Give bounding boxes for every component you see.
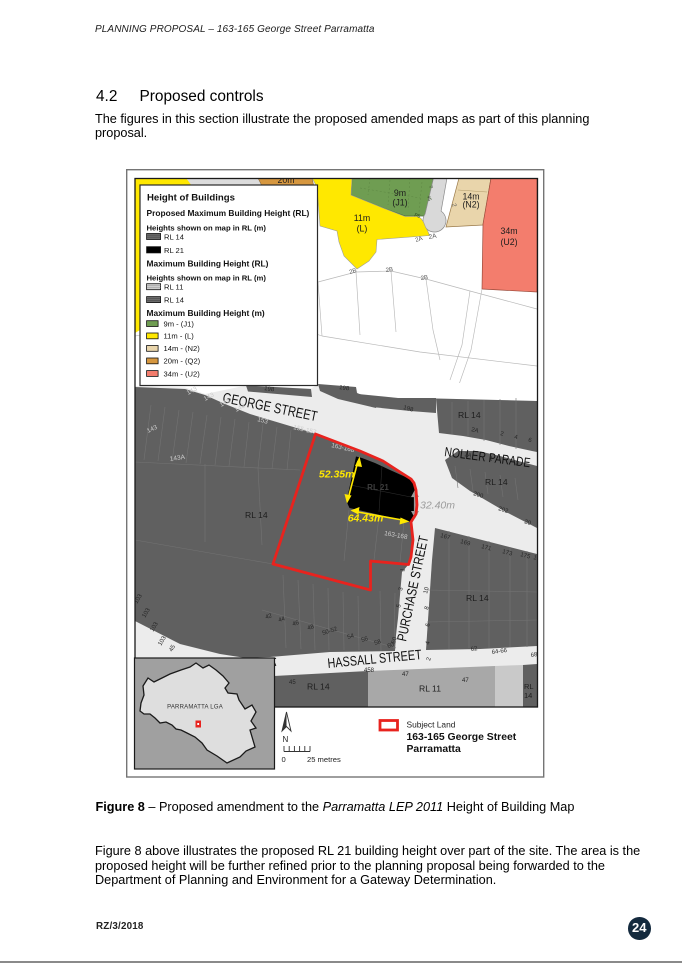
svg-text:RL 11: RL 11 bbox=[419, 684, 441, 694]
svg-text:Height of Buildings: Height of Buildings bbox=[147, 193, 235, 204]
svg-text:RL 21: RL 21 bbox=[164, 246, 184, 255]
svg-text:34m - (U2): 34m - (U2) bbox=[164, 369, 201, 378]
svg-text:Proposed Maximum Building Heig: Proposed Maximum Building Height (RL) bbox=[147, 208, 310, 218]
svg-text:RL 11: RL 11 bbox=[164, 283, 183, 292]
svg-text:RL: RL bbox=[524, 682, 534, 691]
svg-text:N: N bbox=[283, 735, 289, 744]
svg-text:Heights shown on map in RL (m): Heights shown on map in RL (m) bbox=[147, 273, 267, 282]
svg-text:RL 14: RL 14 bbox=[164, 296, 184, 305]
svg-text:32.40m: 32.40m bbox=[420, 500, 455, 512]
svg-text:25 metres: 25 metres bbox=[307, 755, 341, 764]
svg-text:RL 21: RL 21 bbox=[367, 483, 389, 492]
svg-text:47: 47 bbox=[402, 672, 409, 678]
svg-text:RL 14: RL 14 bbox=[466, 593, 489, 603]
svg-text:RL 14: RL 14 bbox=[164, 233, 184, 242]
svg-text:14m - (N2): 14m - (N2) bbox=[164, 344, 201, 353]
svg-text:(U2): (U2) bbox=[500, 237, 517, 247]
svg-text:Maximum Building Height (RL): Maximum Building Height (RL) bbox=[147, 259, 269, 269]
svg-text:RL 14: RL 14 bbox=[307, 682, 330, 692]
svg-text:20m - (Q2): 20m - (Q2) bbox=[164, 357, 201, 366]
svg-text:11m: 11m bbox=[354, 213, 370, 223]
svg-text:11m - (L): 11m - (L) bbox=[164, 332, 195, 341]
svg-text:163-165 George Street: 163-165 George Street bbox=[407, 732, 517, 743]
svg-text:9m - (J1): 9m - (J1) bbox=[164, 319, 195, 328]
svg-text:Parramatta: Parramatta bbox=[407, 744, 462, 755]
svg-text:(N2): (N2) bbox=[462, 200, 479, 210]
svg-text:(J1): (J1) bbox=[392, 198, 407, 208]
svg-text:14: 14 bbox=[524, 691, 532, 700]
svg-text:9m: 9m bbox=[394, 188, 406, 198]
svg-text:RL 14: RL 14 bbox=[458, 410, 481, 420]
svg-text:45: 45 bbox=[289, 680, 296, 686]
svg-text:34m: 34m bbox=[500, 226, 517, 236]
svg-text:RL 14: RL 14 bbox=[245, 510, 268, 520]
svg-text:52.35m: 52.35m bbox=[319, 469, 355, 481]
svg-text:2B: 2B bbox=[385, 267, 393, 274]
svg-text:Maximum Building Height (m): Maximum Building Height (m) bbox=[147, 308, 265, 318]
svg-text:RL 14: RL 14 bbox=[485, 477, 508, 487]
svg-text:(L): (L) bbox=[357, 224, 368, 234]
svg-text:458: 458 bbox=[364, 668, 375, 674]
svg-text:47: 47 bbox=[462, 678, 469, 684]
svg-text:PARRAMATTA LGA: PARRAMATTA LGA bbox=[167, 705, 223, 711]
svg-text:2B: 2B bbox=[420, 275, 428, 282]
svg-text:0: 0 bbox=[282, 755, 286, 764]
svg-text:64.43m: 64.43m bbox=[348, 513, 384, 525]
svg-text:Subject Land: Subject Land bbox=[407, 720, 456, 730]
svg-text:Heights shown on map in RL (m): Heights shown on map in RL (m) bbox=[147, 224, 267, 233]
